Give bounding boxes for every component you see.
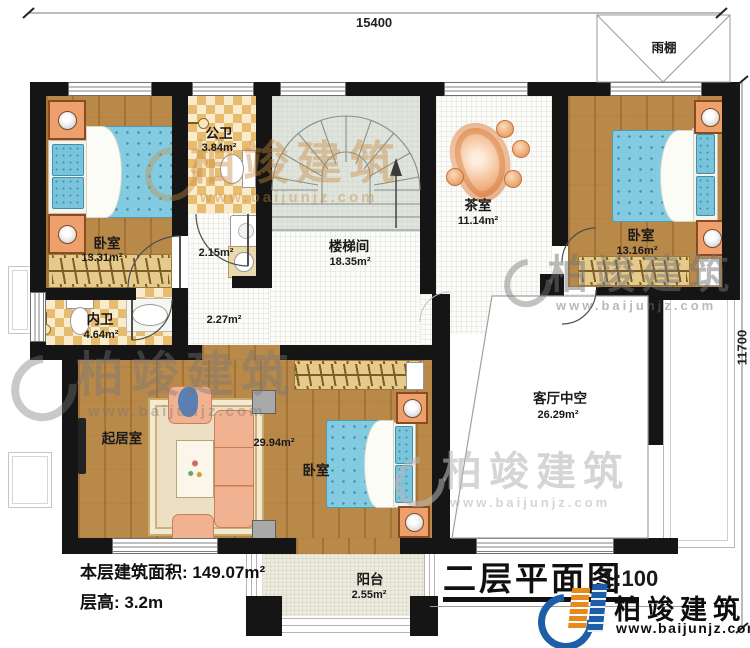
wall — [432, 294, 450, 538]
floor-stairs — [272, 96, 420, 232]
person-figure — [178, 387, 198, 417]
room-area-inner-bath: 4.64m² — [84, 330, 119, 342]
tea-stool — [504, 170, 522, 188]
window — [610, 82, 702, 96]
floor-passage-living — [202, 345, 280, 360]
canopy-label: 雨棚 — [651, 42, 676, 55]
title-underline — [443, 597, 639, 602]
oval-basin — [132, 304, 168, 326]
pillow — [52, 144, 84, 176]
tea-stool — [496, 120, 514, 138]
coffee-table — [176, 440, 214, 498]
window-ledge-left-upper — [8, 266, 32, 334]
balcony-rail-bottom — [282, 618, 410, 638]
floor-height-note: 层高: 3.2m — [80, 588, 163, 613]
wall — [62, 358, 78, 554]
nightstand — [396, 392, 428, 424]
pillow — [395, 426, 413, 464]
room-label-public-bath: 公卫 — [206, 127, 233, 141]
lamp-icon — [58, 111, 77, 130]
cabinet — [698, 258, 720, 286]
wall — [552, 96, 568, 246]
room-label-bedroom-left: 卧室 — [94, 237, 121, 251]
lamp-icon — [58, 225, 77, 244]
window — [112, 538, 218, 554]
pillow — [395, 465, 413, 503]
window — [68, 82, 152, 96]
room-area-balcony: 2.55m² — [352, 590, 387, 602]
lamp-icon — [403, 399, 422, 418]
pillow — [696, 176, 715, 216]
wall — [46, 288, 136, 300]
nightstand — [398, 506, 430, 538]
window — [30, 292, 46, 342]
dimension-right: 11700 — [735, 318, 750, 378]
wall — [280, 345, 432, 360]
room-area-bedroom-left: 13.31m² — [82, 253, 123, 265]
area-hall-upper: 2.15m² — [199, 248, 234, 260]
balcony-rail-right — [424, 554, 438, 598]
wardrobe — [294, 360, 424, 390]
floor-band-right — [552, 294, 648, 334]
toilet-bowl — [220, 154, 244, 184]
window — [444, 82, 528, 96]
floor-balcony — [262, 554, 424, 616]
wall — [420, 96, 436, 294]
floor-balcony-door — [296, 538, 400, 554]
tea-stool — [446, 168, 464, 186]
lamp-icon — [703, 229, 722, 248]
watermark-text: 柏竣建筑 — [442, 452, 630, 492]
floor-area-note: 本层建筑面积: 149.07m² — [80, 558, 265, 583]
washer-drum-icon — [238, 223, 254, 239]
room-area-void: 26.29m² — [538, 410, 579, 422]
terrace-railing-inner — [670, 299, 728, 541]
room-label-tea-room: 茶室 — [465, 199, 492, 213]
wall — [614, 538, 678, 554]
nightstand — [48, 214, 86, 254]
room-area-master: 29.94m² — [254, 438, 295, 450]
brand-url: www.baijunjz.com — [616, 620, 750, 636]
wall — [540, 274, 564, 300]
balcony-post-right — [410, 596, 438, 636]
room-label-stairwell: 楼梯间 — [329, 240, 370, 254]
sofa — [214, 410, 254, 528]
toilet-tank — [242, 150, 256, 188]
balcony-post-left — [246, 596, 282, 636]
watermark-url: www.baijunjz.com — [450, 496, 630, 509]
window — [280, 82, 346, 96]
room-label-balcony: 阳台 — [357, 573, 384, 587]
room-area-tea-room: 11.14m² — [458, 216, 498, 228]
wall — [30, 345, 202, 360]
wall — [172, 288, 188, 345]
room-label-bedroom-right: 卧室 — [628, 229, 655, 243]
tv-panel — [78, 418, 86, 474]
nightstand — [48, 100, 86, 140]
wardrobe — [578, 256, 690, 286]
wall — [232, 276, 270, 288]
room-area-bedroom-right: 13.16m² — [617, 246, 658, 258]
room-area-stairwell: 18.35m² — [330, 257, 371, 269]
cabinet — [406, 362, 424, 390]
tea-stool — [512, 140, 530, 158]
room-label-void: 客厅中空 — [533, 392, 587, 406]
room-label-inner-bath: 内卫 — [87, 313, 114, 327]
floor-plan-canvas: 柏竣建筑 www.baijunjz.com 柏竣建筑 www.baijunjz.… — [0, 0, 750, 648]
dimension-top: 15400 — [356, 15, 392, 30]
window — [192, 82, 254, 96]
light-stem — [188, 122, 198, 124]
room-area-public-bath: 3.84m² — [202, 143, 237, 155]
pillow — [696, 134, 715, 174]
room-label-living: 起居室 — [102, 432, 143, 446]
area-hall-lower: 2.27m² — [207, 315, 242, 327]
wall — [218, 538, 296, 554]
bed-blanket — [660, 130, 694, 222]
lamp-icon — [405, 513, 424, 532]
wall — [256, 96, 272, 288]
wall — [648, 288, 663, 445]
room-label-master: 卧室 — [303, 464, 330, 478]
wall — [62, 538, 112, 554]
bed-blanket — [86, 126, 122, 218]
wall — [722, 82, 740, 293]
watermark: 柏竣建筑 www.baijunjz.com — [442, 452, 630, 509]
side-table — [252, 390, 276, 414]
pillow — [52, 177, 84, 209]
wall — [172, 96, 188, 236]
lamp-icon — [701, 108, 720, 127]
window-ledge-left-lower — [8, 452, 52, 508]
round-sink — [234, 252, 254, 272]
bed-blanket — [364, 420, 394, 508]
wall — [596, 287, 740, 300]
